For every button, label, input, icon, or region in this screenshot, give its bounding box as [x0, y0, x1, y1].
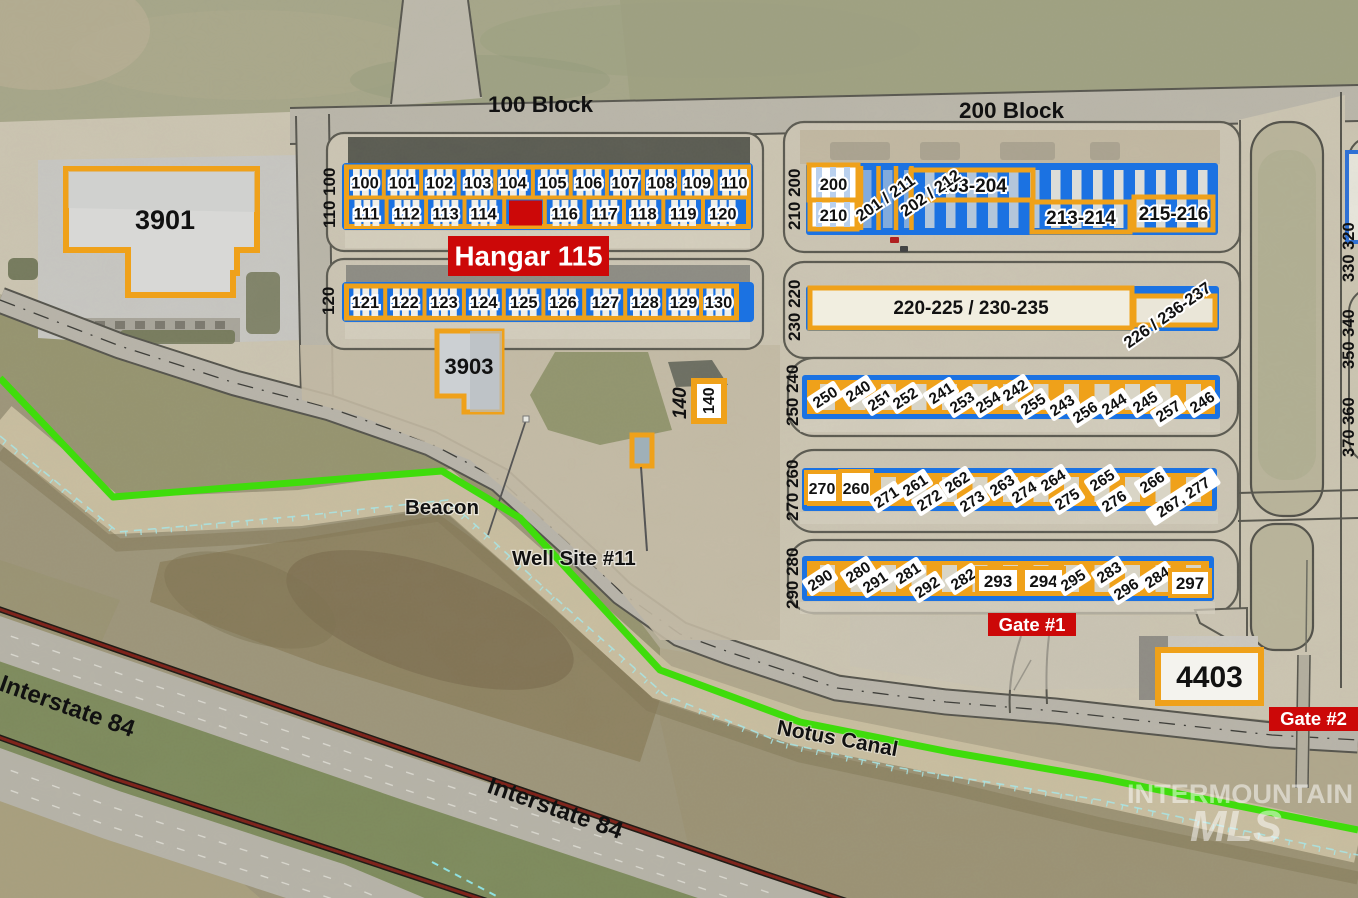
svg-text:200 Block: 200 Block — [959, 98, 1065, 123]
svg-text:Gate #2: Gate #2 — [1280, 708, 1347, 729]
svg-text:110 100: 110 100 — [320, 167, 339, 228]
svg-text:210 200: 210 200 — [785, 169, 804, 230]
svg-text:140: 140 — [670, 387, 691, 419]
svg-text:111: 111 — [354, 206, 380, 224]
svg-text:370 360: 370 360 — [1340, 397, 1358, 457]
svg-text:114: 114 — [470, 206, 497, 224]
svg-text:113: 113 — [432, 206, 459, 224]
svg-text:Hangar 115: Hangar 115 — [455, 241, 603, 272]
svg-text:3903: 3903 — [445, 354, 494, 379]
svg-text:108: 108 — [647, 175, 675, 193]
svg-text:260: 260 — [843, 481, 870, 498]
svg-text:MLS: MLS — [1190, 802, 1282, 851]
svg-text:103: 103 — [464, 175, 492, 193]
svg-text:119: 119 — [670, 206, 697, 224]
svg-text:129: 129 — [670, 294, 698, 312]
svg-text:106: 106 — [575, 175, 603, 193]
svg-text:102: 102 — [426, 175, 454, 193]
svg-text:297: 297 — [1176, 574, 1204, 593]
svg-text:110: 110 — [721, 175, 748, 193]
svg-text:112: 112 — [393, 206, 420, 224]
svg-text:123: 123 — [430, 294, 458, 312]
svg-text:230 220: 230 220 — [785, 280, 804, 341]
svg-text:118: 118 — [630, 206, 657, 224]
svg-text:200: 200 — [820, 176, 848, 194]
svg-text:101: 101 — [389, 175, 417, 193]
svg-text:130: 130 — [705, 294, 733, 312]
svg-text:294: 294 — [1029, 572, 1058, 591]
svg-text:104: 104 — [499, 175, 527, 193]
svg-text:270: 270 — [809, 481, 836, 498]
svg-text:293: 293 — [984, 572, 1012, 591]
svg-text:100: 100 — [351, 175, 379, 193]
svg-text:350 340: 350 340 — [1340, 309, 1358, 369]
svg-text:290 280: 290 280 — [783, 548, 802, 609]
svg-text:127: 127 — [592, 294, 620, 312]
svg-text:116: 116 — [551, 206, 578, 224]
svg-text:250 240: 250 240 — [783, 365, 802, 426]
svg-text:270 260: 270 260 — [783, 460, 802, 521]
svg-text:100 Block: 100 Block — [488, 92, 594, 117]
svg-text:117: 117 — [591, 206, 618, 224]
svg-text:124: 124 — [470, 294, 498, 312]
svg-text:126: 126 — [549, 294, 577, 312]
svg-text:105: 105 — [539, 175, 567, 193]
svg-text:213-214: 213-214 — [1046, 208, 1116, 229]
svg-text:Well Site #11: Well Site #11 — [512, 547, 636, 570]
svg-text:121: 121 — [352, 294, 380, 312]
svg-text:128: 128 — [631, 294, 659, 312]
svg-text:215-216: 215-216 — [1139, 204, 1209, 225]
svg-text:120: 120 — [709, 206, 737, 224]
svg-text:330 320: 330 320 — [1340, 222, 1358, 282]
svg-text:122: 122 — [391, 294, 419, 312]
svg-text:210: 210 — [820, 207, 848, 225]
svg-text:120: 120 — [319, 287, 338, 315]
svg-text:4403: 4403 — [1176, 661, 1243, 694]
svg-text:125: 125 — [510, 294, 538, 312]
svg-text:Beacon: Beacon — [405, 496, 479, 519]
svg-text:107: 107 — [611, 175, 639, 193]
svg-text:Gate #1: Gate #1 — [999, 614, 1066, 635]
svg-text:140: 140 — [701, 387, 718, 414]
svg-text:109: 109 — [684, 175, 712, 193]
svg-text:3901: 3901 — [135, 205, 195, 235]
svg-text:220-225 / 230-235: 220-225 / 230-235 — [893, 298, 1049, 319]
